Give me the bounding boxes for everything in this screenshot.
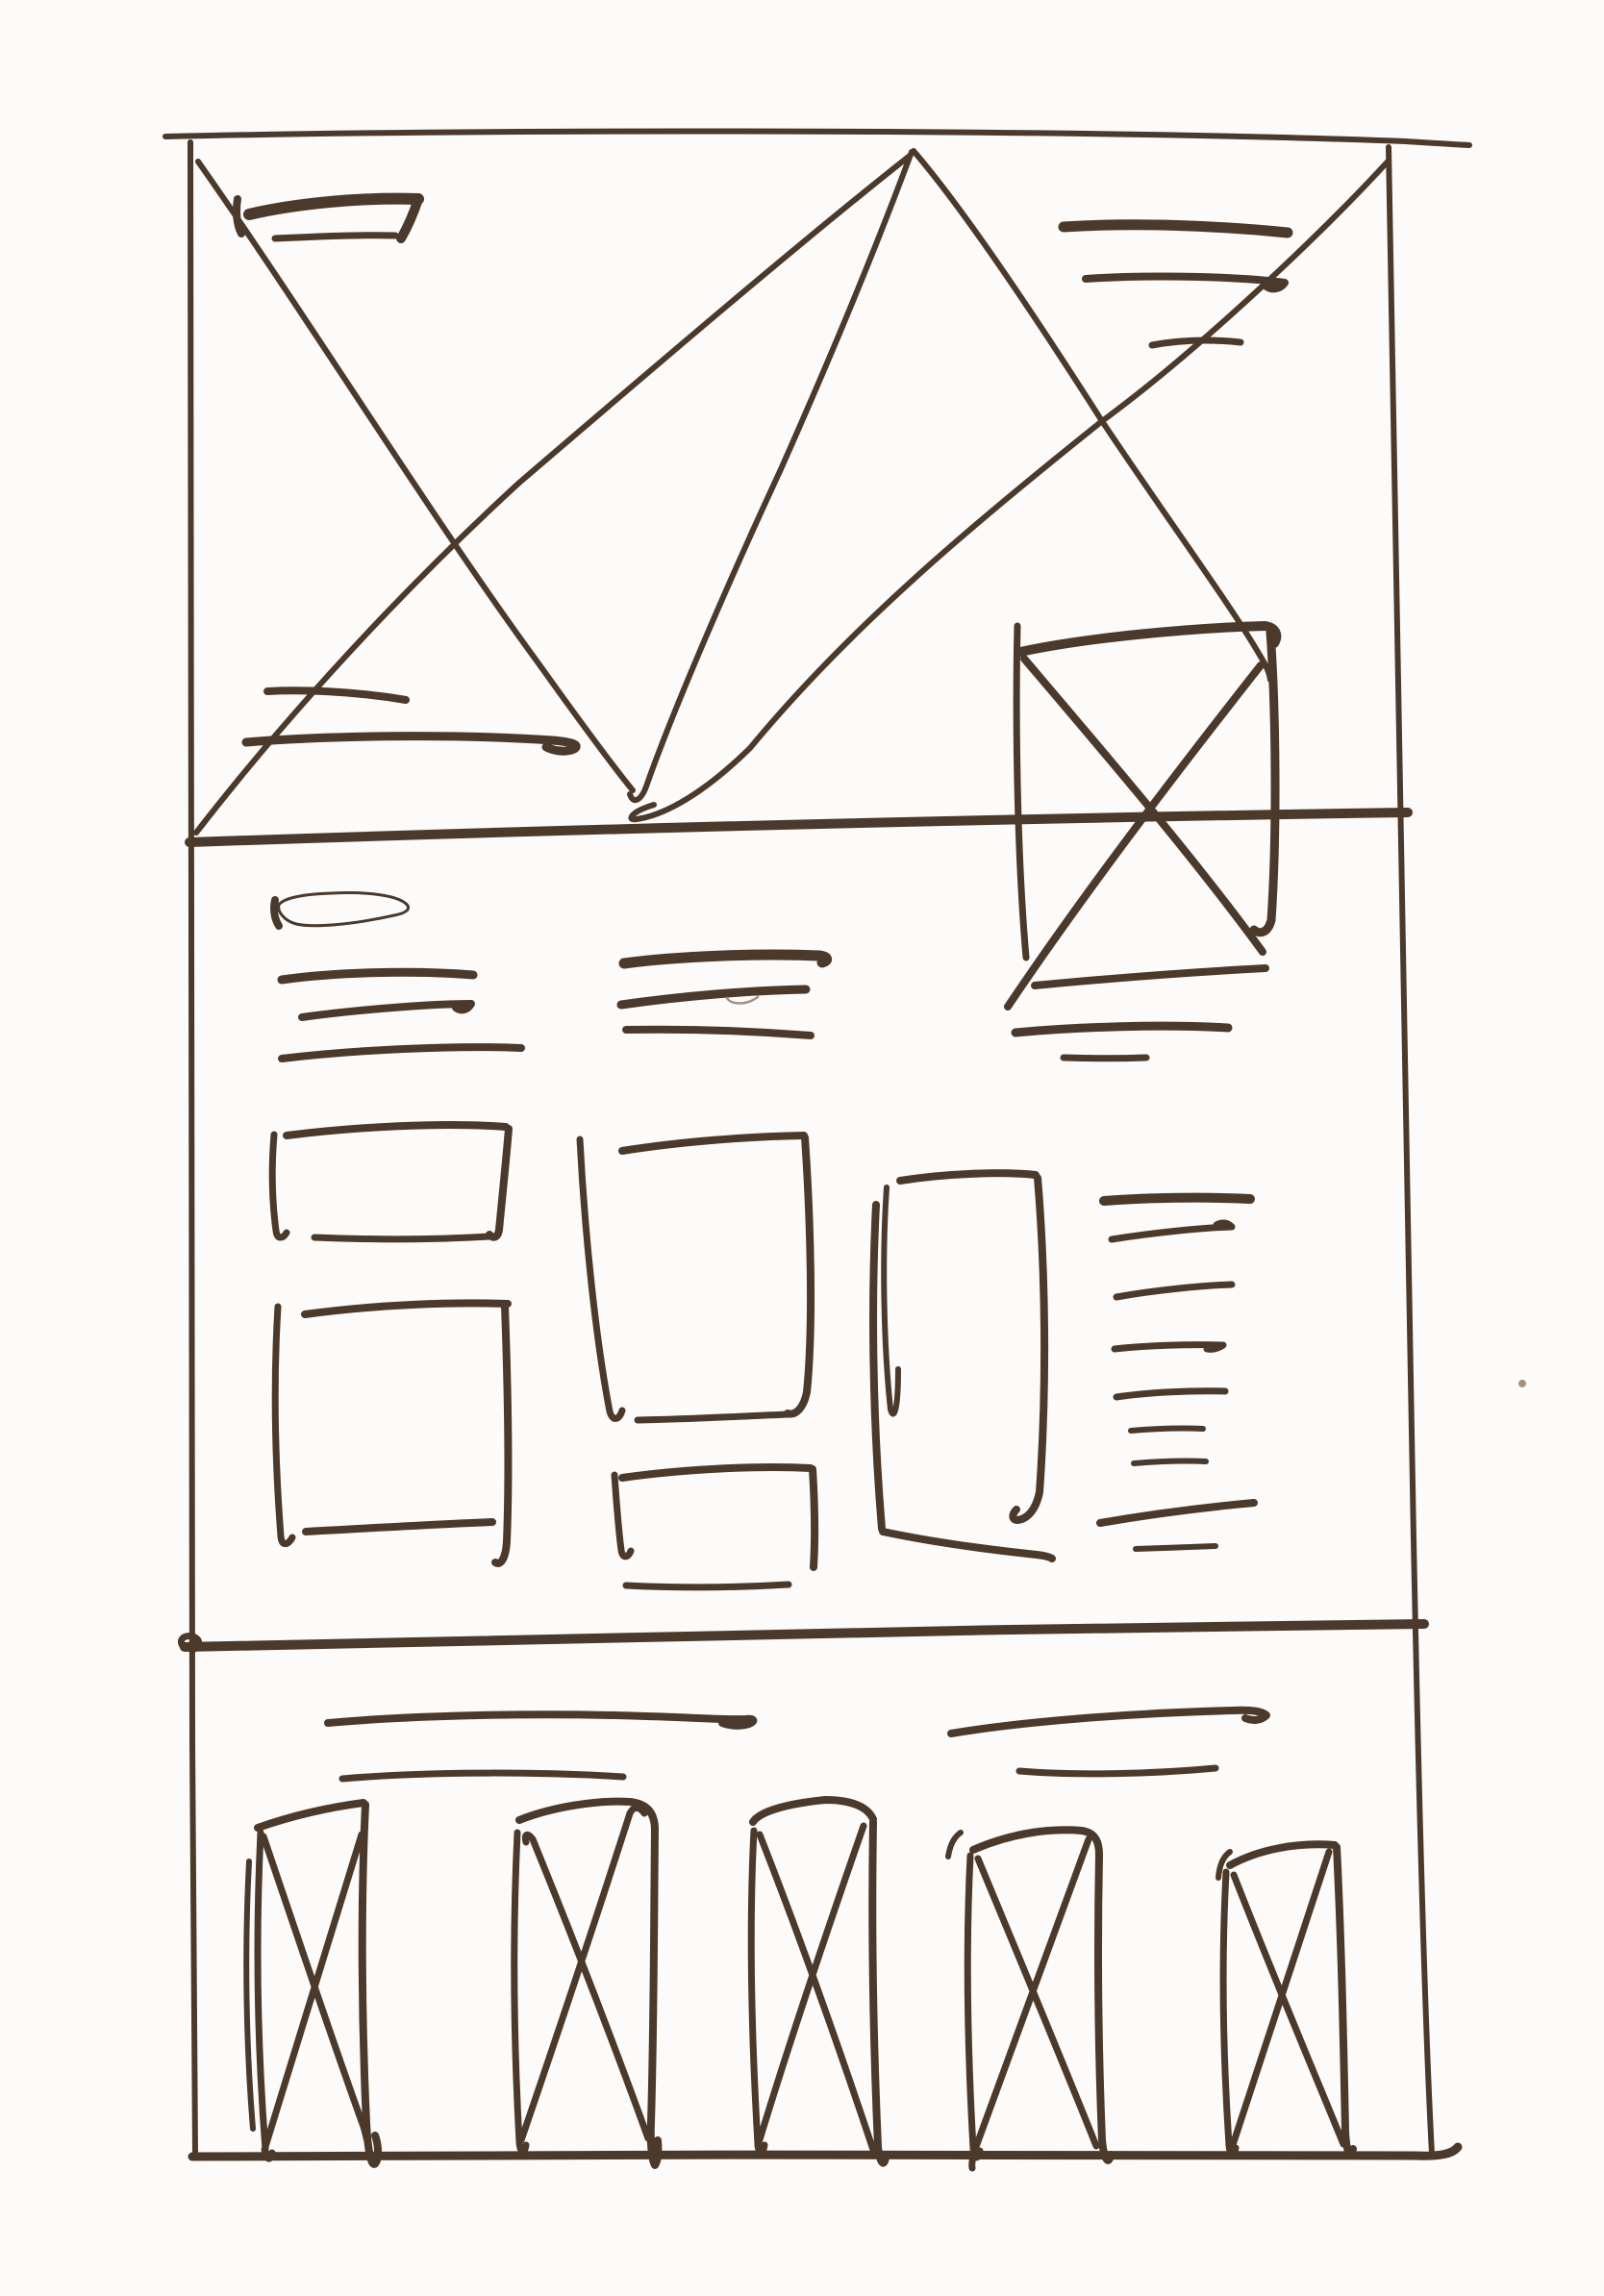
image-placeholder-right-edge bbox=[1254, 632, 1275, 933]
gallery3-cross-1 bbox=[760, 1834, 873, 2150]
image-placeholder-left-edge bbox=[1016, 626, 1026, 958]
sidebar-line-2 bbox=[1112, 1223, 1232, 1239]
card1-left bbox=[272, 1135, 287, 1237]
sidebar-text-lines bbox=[1100, 1198, 1254, 1549]
card1-right bbox=[489, 1129, 509, 1237]
gallery1-right bbox=[363, 1805, 378, 2164]
page-border-bottom bbox=[192, 2147, 1458, 2157]
card1-top bbox=[287, 1125, 506, 1136]
gallery-item-1 bbox=[246, 1803, 378, 2164]
logo-mark bbox=[237, 199, 418, 238]
hero-crossout-line-5 bbox=[196, 156, 910, 833]
card3-top bbox=[622, 1136, 804, 1151]
brand-mark-swoosh bbox=[279, 893, 409, 926]
card5-left-outer bbox=[873, 1205, 882, 1529]
gallery4-right bbox=[1098, 1855, 1111, 2160]
hero-crossout-line-1 bbox=[198, 162, 633, 790]
image-placeholder-bottom-edge bbox=[1035, 968, 1266, 986]
text-left-line-3 bbox=[282, 1047, 521, 1059]
gallery4-left bbox=[967, 1856, 980, 2158]
footer-heading-right-line-2 bbox=[1019, 1768, 1216, 1774]
footer-section bbox=[181, 1624, 1424, 2168]
text-block-right bbox=[1015, 1026, 1228, 1059]
text-block-center bbox=[621, 955, 827, 1036]
gallery3-right bbox=[872, 1822, 886, 2163]
text-left-line-2 bbox=[302, 1004, 471, 1017]
text-center-line-1 bbox=[624, 955, 827, 963]
logo-mark-right-stroke bbox=[401, 199, 418, 238]
sidebar-line-3 bbox=[1116, 1285, 1232, 1297]
page-border-right bbox=[1389, 147, 1432, 2154]
text-center-line-3 bbox=[626, 1030, 811, 1036]
card3-bottom bbox=[638, 1414, 789, 1420]
card5-bottom bbox=[883, 1532, 1052, 1559]
page-border-left bbox=[189, 142, 195, 2156]
text-block-left bbox=[282, 972, 521, 1059]
gallery2-cross-1 bbox=[525, 1834, 648, 2138]
stray-dot bbox=[1518, 1380, 1526, 1387]
sidebar-line-4 bbox=[1115, 1345, 1223, 1350]
logo-mark-tick bbox=[237, 199, 241, 234]
sidebar-line-9 bbox=[1136, 1546, 1216, 1549]
card2-left bbox=[275, 1307, 292, 1544]
footer-heading-left-line-1 bbox=[328, 1714, 753, 1726]
footer-heading-right-line-1 bbox=[951, 1710, 1266, 1734]
gallery-item-3 bbox=[751, 1800, 886, 2163]
text-right-line-2 bbox=[1064, 1058, 1146, 1059]
wireframe-page bbox=[0, 0, 1604, 2296]
text-left-line-1 bbox=[282, 972, 473, 980]
gallery2-right bbox=[651, 1830, 659, 2165]
gallery4-cross-1 bbox=[978, 1859, 1096, 2146]
gallery1-top bbox=[258, 1803, 363, 1828]
gallery5-right bbox=[1337, 1847, 1353, 2154]
gallery1-cross-1 bbox=[263, 1836, 372, 2163]
content-card-1 bbox=[272, 1125, 509, 1239]
hero-text-line-2 bbox=[246, 736, 576, 752]
hero-section bbox=[189, 151, 1408, 1007]
gallery-item-5 bbox=[1218, 1844, 1353, 2154]
content-card-3 bbox=[580, 1136, 811, 1420]
content-section bbox=[272, 893, 1526, 1587]
brand-mark-tick bbox=[274, 900, 279, 926]
card2-top bbox=[305, 1303, 508, 1314]
card3-left bbox=[580, 1139, 622, 1418]
section-divider-2 bbox=[185, 1624, 1424, 1647]
footer-heading-left-line-2 bbox=[342, 1773, 623, 1779]
brand-mark bbox=[274, 893, 409, 926]
text-center-line-2 bbox=[621, 989, 806, 1005]
text-center-faint-loop bbox=[727, 997, 758, 1004]
logo-mark-underline bbox=[275, 236, 395, 238]
gallery-row bbox=[246, 1800, 1353, 2168]
content-card-2 bbox=[275, 1303, 508, 1563]
gallery2-left bbox=[514, 1833, 526, 2152]
text-right-line-1 bbox=[1015, 1026, 1228, 1033]
sidebar-line-5 bbox=[1116, 1391, 1225, 1397]
section-divider-1 bbox=[189, 812, 1408, 842]
gallery4-top bbox=[973, 1830, 1099, 1855]
gallery1-left-outer bbox=[246, 1861, 253, 2129]
nav-link-line-1 bbox=[1064, 225, 1288, 233]
gallery5-top bbox=[1230, 1844, 1335, 1865]
card4-top bbox=[622, 1467, 811, 1478]
card4-right bbox=[813, 1469, 815, 1567]
gallery-item-2 bbox=[514, 1802, 659, 2165]
card2-right bbox=[495, 1306, 508, 1563]
content-card-4 bbox=[614, 1467, 815, 1587]
card5-top bbox=[900, 1173, 1036, 1181]
hero-text-line-1 bbox=[267, 690, 406, 700]
sketch-paper: { "meta": { "description": "Hand-drawn p… bbox=[0, 0, 1604, 2296]
hero-crossout-line-2 bbox=[630, 152, 912, 800]
card3-right bbox=[788, 1137, 811, 1414]
card4-left bbox=[614, 1475, 631, 1557]
hero-text-lines bbox=[246, 690, 576, 751]
sidebar-line-1 bbox=[1104, 1198, 1250, 1201]
sidebar-line-7 bbox=[1134, 1461, 1206, 1463]
gallery3-top bbox=[753, 1800, 873, 1822]
card1-bottom bbox=[314, 1236, 489, 1239]
card5-left-inner bbox=[884, 1187, 898, 1414]
gallery1-left bbox=[258, 1833, 272, 2159]
content-card-5 bbox=[873, 1173, 1052, 1559]
image-placeholder-top-edge bbox=[1020, 626, 1276, 652]
nav-link-line-2 bbox=[1086, 276, 1285, 288]
sidebar-line-8 bbox=[1100, 1503, 1254, 1523]
gallery3-left bbox=[751, 1831, 764, 2153]
gallery5-left bbox=[1223, 1872, 1236, 2155]
logo-mark-top-stroke bbox=[249, 199, 418, 214]
sidebar-line-6 bbox=[1131, 1429, 1203, 1431]
nav-link-lines bbox=[1064, 225, 1288, 345]
footer-heading-lines bbox=[328, 1710, 1266, 1779]
card4-bottom bbox=[626, 1585, 789, 1587]
image-placeholder-cross-line-2 bbox=[1008, 665, 1261, 1007]
wireframe-sketch bbox=[0, 0, 1604, 2296]
gallery-item-4 bbox=[948, 1830, 1111, 2168]
page-border-top bbox=[165, 132, 1469, 145]
card5-right bbox=[1013, 1178, 1044, 1520]
gallery4-left-tick bbox=[948, 1833, 961, 1857]
gallery5-cross-1 bbox=[1234, 1875, 1343, 2144]
card2-bottom bbox=[306, 1522, 492, 1532]
